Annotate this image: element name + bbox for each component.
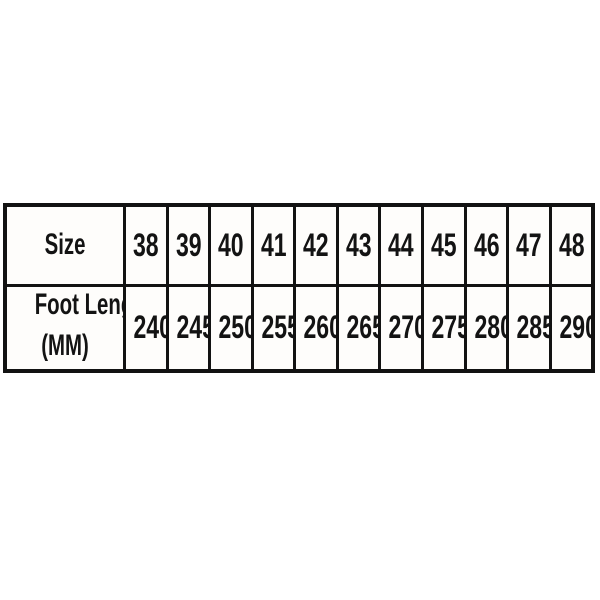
size-cell-value: 39 xyxy=(176,227,202,264)
foot-length-cell-3: 255 xyxy=(252,285,295,371)
size-chart-table: Size 3839404142434445464748 Foot Length … xyxy=(3,203,595,373)
foot-length-cell-2: 250 xyxy=(210,285,253,371)
size-label: Size xyxy=(45,228,86,262)
foot-length-cell-value: 270 xyxy=(389,309,423,346)
size-cell-5: 43 xyxy=(337,205,380,285)
size-row-header-cell: Size xyxy=(5,205,125,285)
size-cell-value: 38 xyxy=(133,227,159,264)
size-cell-value: 43 xyxy=(346,227,372,264)
foot-length-cell-10: 290 xyxy=(550,285,593,371)
size-cell-4: 42 xyxy=(295,205,338,285)
size-cell-value: 48 xyxy=(559,227,585,264)
foot-length-cell-value: 250 xyxy=(219,309,253,346)
foot-length-cell-value: 245 xyxy=(176,309,210,346)
foot-length-cell-value: 260 xyxy=(304,309,338,346)
foot-length-cell-value: 290 xyxy=(559,309,593,346)
foot-length-cell-9: 285 xyxy=(508,285,551,371)
size-cell-1: 39 xyxy=(167,205,210,285)
size-cell-9: 47 xyxy=(508,205,551,285)
foot-length-label-line1: Foot Length xyxy=(35,287,125,323)
size-row: Size 3839404142434445464748 xyxy=(5,205,593,285)
size-cell-10: 48 xyxy=(550,205,593,285)
size-cell-8: 46 xyxy=(465,205,508,285)
foot-length-cell-value: 280 xyxy=(474,309,508,346)
size-cell-value: 46 xyxy=(474,227,500,264)
size-cell-3: 41 xyxy=(252,205,295,285)
size-cell-value: 42 xyxy=(303,227,329,264)
foot-length-cell-7: 275 xyxy=(423,285,466,371)
foot-length-cell-1: 245 xyxy=(167,285,210,371)
foot-length-label-line2: (MM) xyxy=(41,328,89,364)
size-cell-7: 45 xyxy=(423,205,466,285)
foot-length-cell-value: 275 xyxy=(432,309,466,346)
size-cell-value: 40 xyxy=(218,227,244,264)
size-cell-2: 40 xyxy=(210,205,253,285)
foot-length-cell-value: 240 xyxy=(133,309,167,346)
foot-length-cell-value: 285 xyxy=(517,309,551,346)
size-cell-6: 44 xyxy=(380,205,423,285)
foot-length-cell-6: 270 xyxy=(380,285,423,371)
foot-length-row: Foot Length (MM) 24024525025526026527027… xyxy=(5,285,593,371)
foot-length-cell-8: 280 xyxy=(465,285,508,371)
page-background: Size 3839404142434445464748 Foot Length … xyxy=(0,0,600,600)
foot-length-cell-0: 240 xyxy=(125,285,168,371)
size-cell-value: 44 xyxy=(388,227,414,264)
size-cell-0: 38 xyxy=(125,205,168,285)
foot-length-cell-value: 255 xyxy=(261,309,295,346)
foot-length-cell-5: 265 xyxy=(337,285,380,371)
size-cell-value: 41 xyxy=(261,227,287,264)
foot-length-row-header-cell: Foot Length (MM) xyxy=(5,285,125,371)
size-cell-value: 47 xyxy=(516,227,542,264)
size-cell-value: 45 xyxy=(431,227,457,264)
foot-length-cell-4: 260 xyxy=(295,285,338,371)
foot-length-cell-value: 265 xyxy=(346,309,380,346)
